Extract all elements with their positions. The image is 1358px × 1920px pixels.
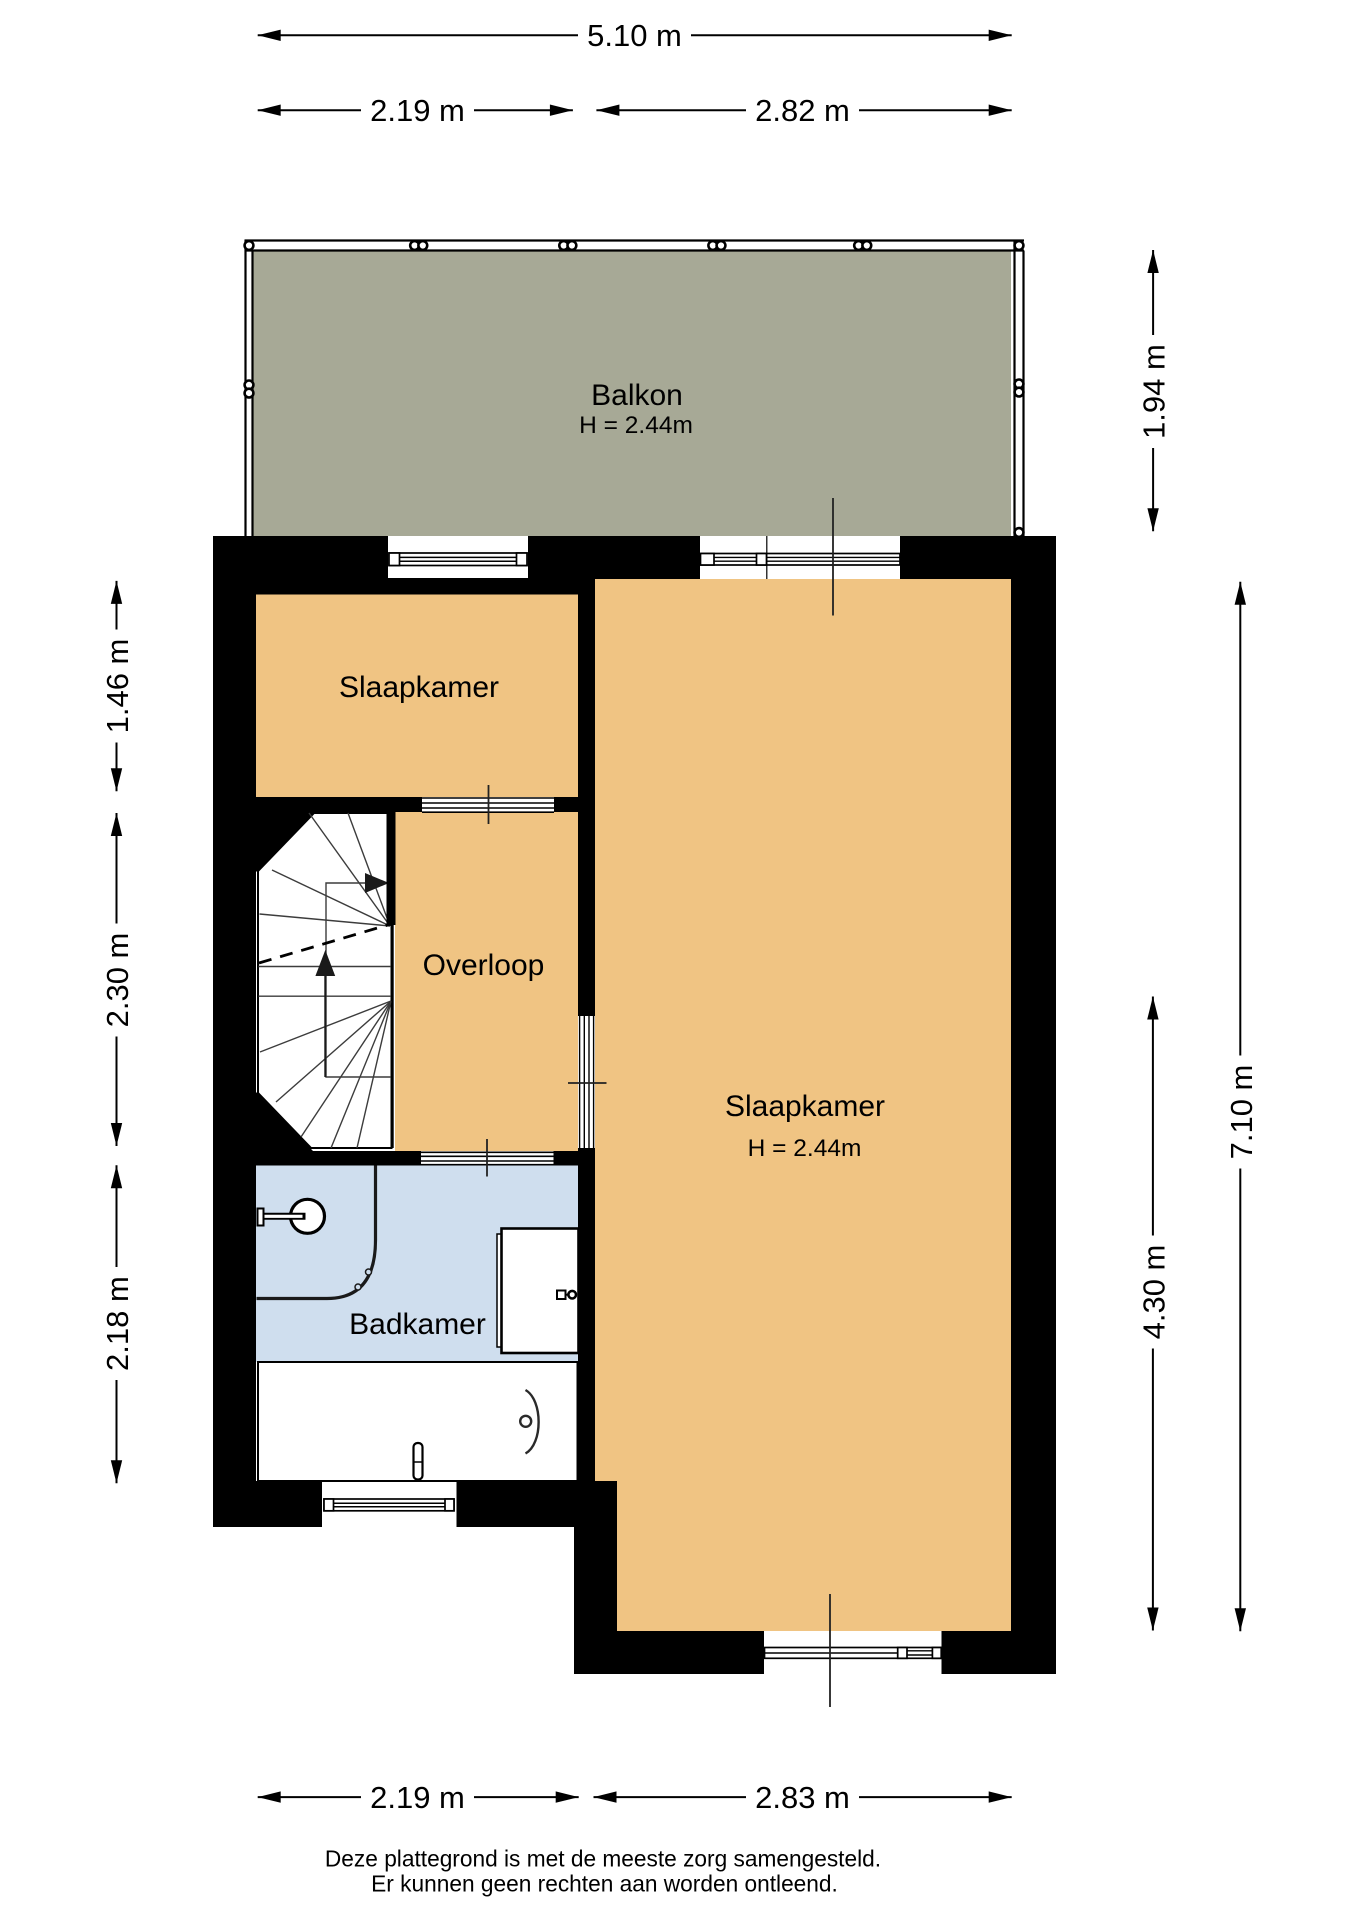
svg-text:2.83 m: 2.83 m	[755, 1780, 850, 1815]
svg-text:2.19 m: 2.19 m	[370, 93, 465, 128]
svg-text:Er kunnen geen rechten aan wor: Er kunnen geen rechten aan worden ontlee…	[371, 1871, 838, 1897]
svg-text:2.18 m: 2.18 m	[100, 1276, 135, 1371]
svg-text:Balkon: Balkon	[591, 379, 683, 412]
svg-text:2.19 m: 2.19 m	[370, 1780, 465, 1815]
svg-text:2.30 m: 2.30 m	[100, 933, 135, 1028]
svg-text:2.82 m: 2.82 m	[755, 93, 850, 128]
svg-text:H = 2.44m: H = 2.44m	[579, 412, 693, 439]
svg-text:H = 2.44m: H = 2.44m	[748, 1135, 862, 1162]
svg-text:Slaapkamer: Slaapkamer	[725, 1090, 885, 1123]
svg-text:Deze plattegrond is met de mee: Deze plattegrond is met de meeste zorg s…	[325, 1846, 881, 1872]
svg-text:5.10 m: 5.10 m	[587, 18, 682, 53]
svg-text:4.30 m: 4.30 m	[1136, 1245, 1171, 1340]
svg-text:1.46 m: 1.46 m	[100, 639, 135, 734]
svg-text:1.94 m: 1.94 m	[1137, 344, 1172, 439]
svg-text:Slaapkamer: Slaapkamer	[339, 671, 499, 704]
svg-text:7.10 m: 7.10 m	[1224, 1065, 1259, 1160]
svg-text:Overloop: Overloop	[423, 949, 545, 982]
svg-text:Badkamer: Badkamer	[349, 1308, 486, 1341]
